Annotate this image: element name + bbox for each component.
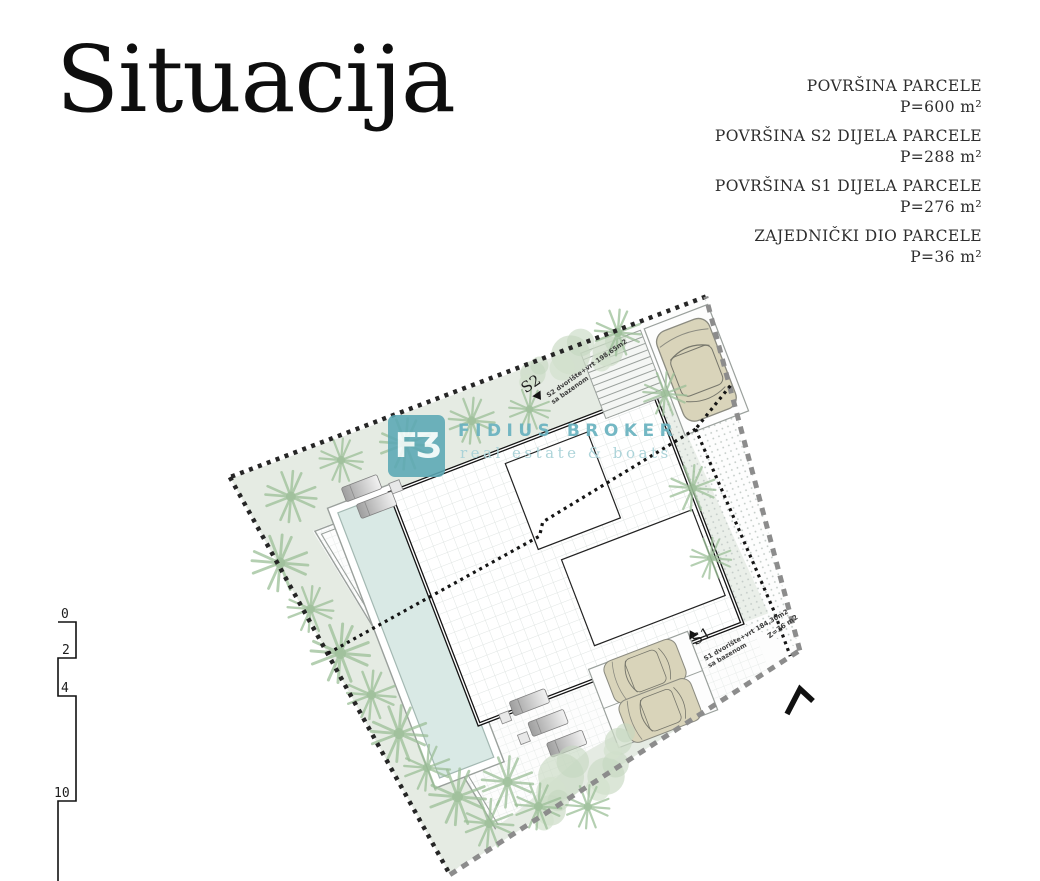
- chevron-mark-icon: [787, 689, 813, 714]
- watermark-name: FIDIUS BROKER: [458, 421, 678, 441]
- watermark-tagline: real estate & boats: [460, 444, 672, 462]
- scale-tick-2: 2: [62, 643, 70, 658]
- scale-bar-line: [58, 622, 76, 881]
- scale-tick-0: 0: [61, 607, 69, 622]
- fidius-broker-logo-icon: FƷ: [388, 415, 445, 477]
- scale-tick-4: 4: [61, 681, 69, 696]
- scale-tick-10: 10: [54, 786, 70, 801]
- situacija-sheet: Situacija POVRŠINA PARCELE P=600 m² POVR…: [0, 0, 1040, 881]
- scale-bar: 0 2 4 10: [54, 607, 76, 881]
